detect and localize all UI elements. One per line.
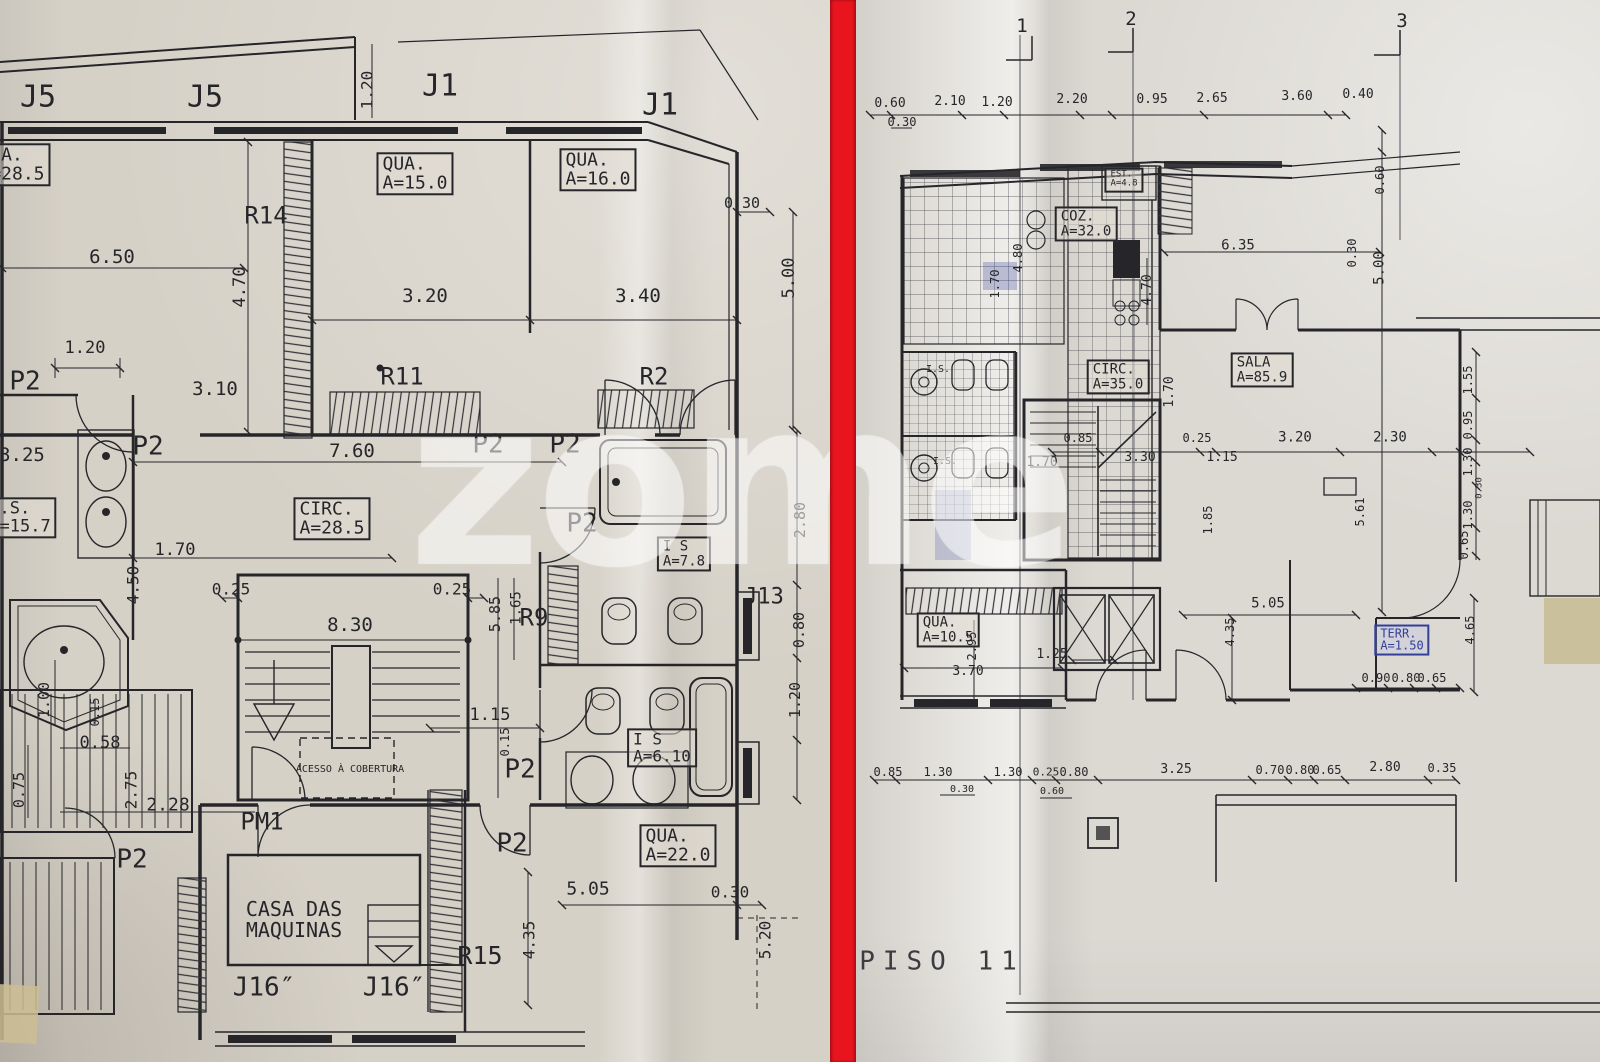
dim: 2.20 [1056, 93, 1087, 107]
dim: 1.30 [1462, 501, 1474, 530]
door-tag: PM1 [240, 810, 283, 835]
dim: 5.00 [1373, 251, 1388, 285]
door-tag: P2 [9, 368, 40, 395]
dim: 2.80 [1369, 761, 1400, 775]
dim: 3.60 [1281, 90, 1312, 104]
radiator-tag: R2 [640, 365, 669, 390]
dim: 2.28 [146, 797, 189, 816]
dim: 4.35 [522, 921, 539, 960]
door-tag: P2 [566, 510, 597, 537]
door-tag: P2 [549, 431, 580, 458]
radiator-tag: R11 [380, 365, 423, 390]
door-tag: P2 [504, 756, 535, 783]
dim: 0.25 [212, 582, 251, 599]
room-label: CASA DAS MAQUINAS [246, 899, 342, 941]
dim: 0.15 [89, 698, 101, 727]
dim: 1.20 [788, 682, 804, 718]
dim: 1.30 [1462, 448, 1474, 477]
dim: 0.30 [888, 116, 917, 128]
dim: 1.30 [924, 766, 953, 778]
radiator-tag: R14 [244, 204, 287, 229]
dim: 1.15 [470, 707, 511, 725]
dim: 0.25 [1033, 766, 1060, 777]
dim: 0.80 [1392, 672, 1421, 684]
room-label: I.S. [933, 457, 957, 467]
plan-text-layer: J5J5J1J11.20QUA. A=28.5QUA. A=15.0QUA. A… [0, 0, 1600, 1062]
room-label: I S A=6.10 [627, 728, 697, 767]
dim: 0.65 [1458, 531, 1470, 560]
dim: 1.20 [981, 96, 1012, 110]
room-label: QUA. A=16.0 [559, 148, 636, 191]
room-label: I S A=7.8 [657, 536, 711, 571]
dim: 0.80 [792, 612, 808, 648]
dim: 0.80 [1060, 766, 1089, 778]
dim: 1.20 [360, 71, 377, 110]
dim: 5.00 [781, 258, 799, 299]
dim: 1.70 [1026, 456, 1057, 470]
dim: 8.30 [327, 616, 373, 636]
room-label: COZ. A=32.0 [1055, 206, 1118, 241]
dim: 5.61 [1354, 498, 1366, 527]
red-divider-bar [830, 0, 856, 1062]
dim: 6.35 [1221, 239, 1255, 254]
radiator-tag: R9 [520, 606, 549, 631]
radiator-tag: R15 [457, 943, 502, 969]
dim: 2.75 [124, 771, 141, 810]
door-tag: P2 [116, 846, 147, 873]
dim: 4.65 [1464, 616, 1476, 645]
window-tag: J1 [642, 89, 678, 120]
dim: 0.85 [874, 766, 903, 778]
dim: 3.40 [615, 287, 661, 307]
dim: 5.05 [566, 881, 609, 900]
dim: 0.15 [499, 728, 511, 757]
dim: 4.35 [1224, 618, 1236, 647]
dim: 3.70 [952, 665, 983, 679]
dim: 0.30 [724, 196, 760, 212]
dim: 0.60 [874, 97, 905, 111]
grid-number: 1 [1016, 17, 1027, 37]
dim: 1.70 [155, 542, 196, 560]
dim: 0.30 [711, 885, 750, 902]
room-label: I.S. A=15.7 [0, 497, 57, 538]
room-label: CIRC. A=35.0 [1087, 359, 1150, 394]
dim: 0.60 [1374, 166, 1386, 195]
room-label: QUA. A=28.5 [0, 143, 51, 186]
note: ACESSO À COBERTURA [296, 765, 404, 775]
dim: 7.60 [329, 442, 375, 462]
door-tag: P2 [496, 830, 527, 857]
dim: 0.25 [1183, 432, 1212, 444]
dim: 1.55 [1462, 366, 1474, 395]
dim: 0.85 [1064, 432, 1093, 444]
dim: 1.30 [994, 766, 1023, 778]
dim: 4.80 [1012, 244, 1024, 273]
dim: 3.25 [1160, 763, 1191, 777]
dim: 0.80 [1286, 764, 1315, 776]
dim: 3.10 [192, 380, 238, 400]
room-label: QUA. A=15.0 [376, 152, 453, 195]
dim: 0.25 [433, 582, 472, 599]
dim: 2.30 [1373, 431, 1407, 446]
dim: 6.50 [89, 248, 135, 268]
dim: 0.58 [80, 735, 121, 753]
dim: 5.20 [758, 921, 775, 960]
dim: 1.15 [1206, 451, 1237, 465]
dim: 3.20 [1278, 431, 1312, 446]
window-tag: J5 [187, 81, 223, 112]
room-label: I.S. [926, 365, 950, 375]
dim: 0.65 [1313, 764, 1342, 776]
grid-number: 3 [1396, 12, 1407, 32]
dim: 2.10 [934, 95, 965, 109]
dim: 3.20 [402, 287, 448, 307]
dim: 0.95 [1462, 411, 1474, 440]
dim: 1.20 [65, 340, 106, 358]
blueprint-photo: J5J5J1J11.20QUA. A=28.5QUA. A=15.0QUA. A… [0, 0, 1600, 1062]
room-label-stamp: TERR. A=1.50 [1374, 625, 1429, 656]
dim: 5.05 [1251, 597, 1285, 612]
dim: 4.70 [1141, 274, 1155, 305]
dim: 2.65 [1196, 92, 1227, 106]
dim: 0.75 [12, 772, 28, 808]
window-tag: J16″ [363, 974, 426, 1001]
dim: 0.60 [1040, 787, 1064, 797]
dim: 1.70 [1163, 376, 1177, 407]
dim: 1.00 [37, 682, 53, 718]
dim: 2.95 [966, 632, 978, 661]
grid-number: 2 [1125, 10, 1136, 30]
dim: 0.95 [1136, 93, 1167, 107]
window-tag: J5 [20, 81, 56, 112]
window-tag: J16″ [233, 974, 296, 1001]
room-label: EST. A=4.8 [1104, 168, 1143, 193]
dim: 1.85 [1202, 506, 1214, 535]
window-tag: J13 [744, 587, 784, 610]
door-tag: P2 [132, 433, 163, 460]
dim: 0.90 [1362, 672, 1391, 684]
dim: 3.30 [1124, 451, 1155, 465]
door-tag: P2 [472, 431, 503, 458]
floor-title: PISO 11 [859, 948, 1025, 975]
dim: 4.70 [232, 267, 250, 308]
dim: 1.70 [989, 270, 1001, 299]
dim: 0.40 [1342, 88, 1373, 102]
dim: 0.65 [1418, 672, 1447, 684]
dim: 0.30 [1346, 239, 1358, 268]
dim: 1.25 [1036, 648, 1067, 662]
dim: 4.50 [126, 566, 143, 605]
dim: 0.30 [1475, 477, 1484, 499]
dim: 0.30 [950, 785, 974, 795]
room-label: CIRC. A=28.5 [293, 497, 370, 540]
dim: 2.80 [793, 502, 809, 538]
dim: 0.35 [1428, 762, 1457, 774]
dim: 0.70 [1256, 764, 1285, 776]
room-label: SALA A=85.9 [1231, 352, 1294, 387]
window-tag: J1 [422, 70, 458, 101]
dim: 5.85 [488, 596, 504, 632]
room-label: QUA. A=22.0 [639, 824, 716, 867]
dim: 3.25 [0, 446, 45, 466]
